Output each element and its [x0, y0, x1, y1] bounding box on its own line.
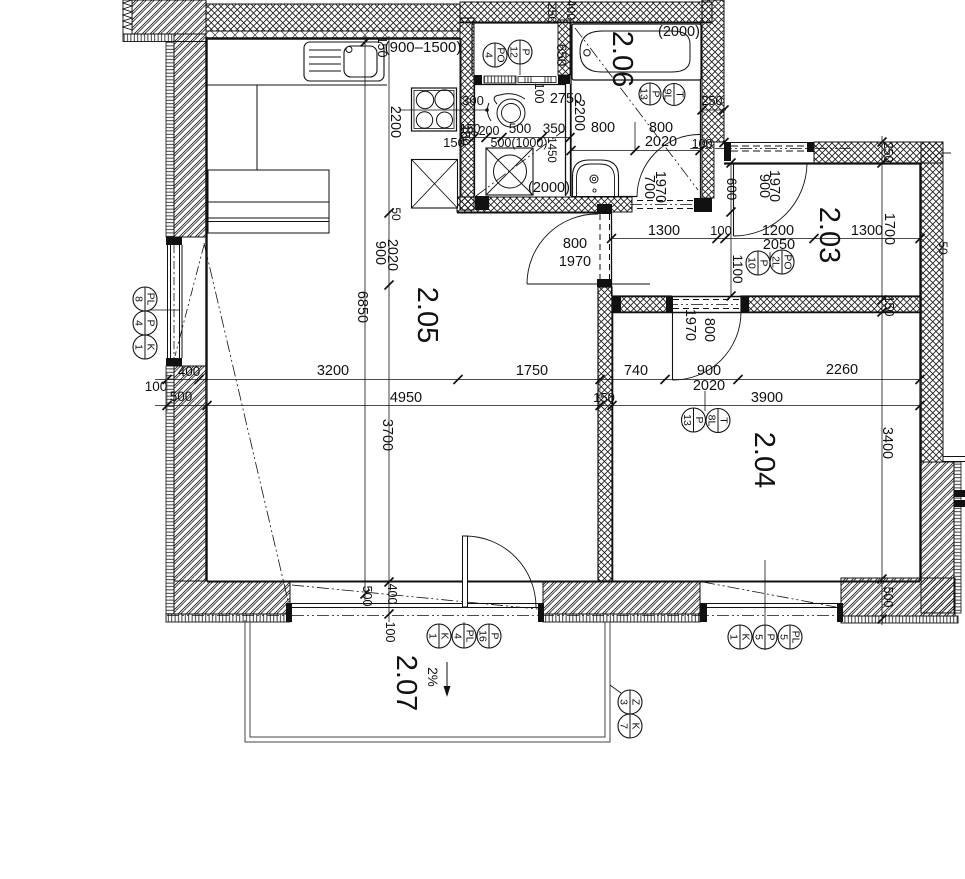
svg-text:7: 7	[618, 723, 630, 729]
svg-text:PL: PL	[790, 631, 802, 644]
svg-text:K: K	[740, 633, 752, 640]
svg-text:900: 900	[697, 363, 721, 379]
svg-text:12: 12	[508, 46, 520, 58]
svg-text:4: 4	[452, 633, 464, 639]
svg-text:PL: PL	[464, 630, 476, 643]
svg-text:3900: 3900	[751, 390, 783, 406]
svg-text:T: T	[674, 91, 686, 98]
svg-text:650: 650	[554, 44, 569, 67]
svg-text:1970: 1970	[652, 171, 668, 203]
svg-text:100: 100	[692, 137, 713, 151]
svg-text:100: 100	[145, 379, 168, 394]
svg-text:10: 10	[746, 257, 758, 269]
svg-text:8: 8	[133, 296, 145, 302]
svg-text:2020: 2020	[693, 378, 725, 394]
svg-text:P: P	[758, 259, 770, 266]
svg-text:2200: 2200	[387, 106, 403, 138]
svg-text:1450: 1450	[545, 137, 557, 163]
svg-text:4: 4	[483, 52, 495, 58]
svg-text:9L: 9L	[662, 89, 674, 101]
svg-text:P: P	[520, 48, 532, 55]
svg-text:2.04: 2.04	[748, 432, 780, 488]
svg-text:500: 500	[881, 587, 895, 608]
svg-text:600: 600	[724, 178, 739, 201]
svg-text:(2000): (2000)	[658, 24, 700, 40]
svg-text:2.05: 2.05	[411, 287, 443, 343]
svg-text:(2000): (2000)	[528, 180, 570, 196]
svg-text:1750: 1750	[516, 363, 548, 379]
svg-text:500(1000): 500(1000)	[491, 136, 548, 150]
svg-text:K: K	[145, 343, 157, 350]
svg-text:3: 3	[618, 699, 630, 705]
svg-text:4950: 4950	[390, 390, 422, 406]
svg-text:500: 500	[170, 389, 193, 404]
svg-text:PL: PL	[145, 293, 157, 306]
svg-text:6850: 6850	[354, 291, 370, 323]
svg-text:P: P	[693, 416, 705, 423]
svg-text:2260: 2260	[826, 362, 858, 378]
svg-text:PO: PO	[495, 47, 507, 62]
svg-text:1: 1	[427, 633, 439, 639]
svg-text:P: P	[489, 632, 501, 639]
svg-text:400: 400	[564, 0, 578, 20]
svg-text:1100: 1100	[730, 254, 745, 283]
svg-text:Z: Z	[630, 699, 642, 706]
svg-text:1970: 1970	[682, 309, 698, 341]
svg-text:2020: 2020	[384, 239, 400, 271]
svg-text:P: P	[650, 90, 662, 97]
svg-text:3700: 3700	[379, 419, 395, 451]
svg-text:1: 1	[728, 634, 740, 640]
svg-text:16: 16	[477, 630, 489, 642]
svg-text:2020: 2020	[645, 134, 677, 150]
svg-text:50: 50	[936, 241, 950, 255]
svg-text:100: 100	[532, 83, 546, 104]
svg-text:500: 500	[509, 121, 532, 136]
svg-text:250: 250	[545, 3, 559, 23]
svg-text:2200: 2200	[571, 99, 587, 131]
svg-text:400: 400	[178, 364, 201, 379]
svg-text:5: 5	[753, 634, 765, 640]
svg-text:8L: 8L	[706, 415, 718, 427]
svg-text:800: 800	[591, 120, 615, 136]
svg-text:300: 300	[462, 93, 484, 108]
svg-text:T: T	[718, 417, 730, 424]
svg-text:4: 4	[133, 320, 145, 326]
svg-text:1970: 1970	[559, 254, 591, 270]
svg-text:1700: 1700	[881, 213, 897, 245]
svg-text:250: 250	[702, 94, 723, 108]
svg-text:K: K	[439, 632, 451, 639]
svg-text:250: 250	[881, 142, 895, 163]
svg-text:3400: 3400	[879, 427, 895, 459]
svg-text:740: 740	[624, 363, 648, 379]
svg-text:P: P	[765, 633, 777, 640]
svg-text:(900–1500): (900–1500)	[385, 39, 462, 56]
svg-text:P: P	[145, 319, 157, 326]
svg-text:100: 100	[383, 622, 397, 643]
svg-text:400: 400	[385, 584, 399, 605]
svg-text:500: 500	[360, 586, 374, 607]
svg-text:13: 13	[681, 414, 693, 426]
svg-text:1300: 1300	[648, 223, 680, 239]
svg-text:1: 1	[133, 344, 145, 350]
svg-text:50: 50	[389, 207, 403, 221]
svg-text:350: 350	[543, 121, 566, 136]
svg-text:2.07: 2.07	[390, 655, 422, 711]
svg-text:800: 800	[563, 236, 587, 252]
svg-text:2L: 2L	[770, 256, 782, 268]
svg-text:150: 150	[593, 390, 615, 405]
svg-text:5: 5	[778, 634, 790, 640]
svg-text:1300: 1300	[851, 223, 883, 239]
svg-text:2.06: 2.06	[606, 31, 638, 87]
svg-text:150: 150	[443, 135, 465, 150]
svg-text:PO: PO	[782, 254, 794, 269]
svg-text:1970: 1970	[766, 170, 782, 202]
svg-text:150: 150	[882, 296, 896, 317]
svg-text:3200: 3200	[317, 363, 349, 379]
svg-text:2%: 2%	[425, 667, 440, 687]
svg-text:13: 13	[638, 88, 650, 100]
svg-text:800: 800	[701, 318, 717, 342]
svg-text:100: 100	[710, 223, 732, 238]
svg-text:K: K	[630, 722, 642, 729]
